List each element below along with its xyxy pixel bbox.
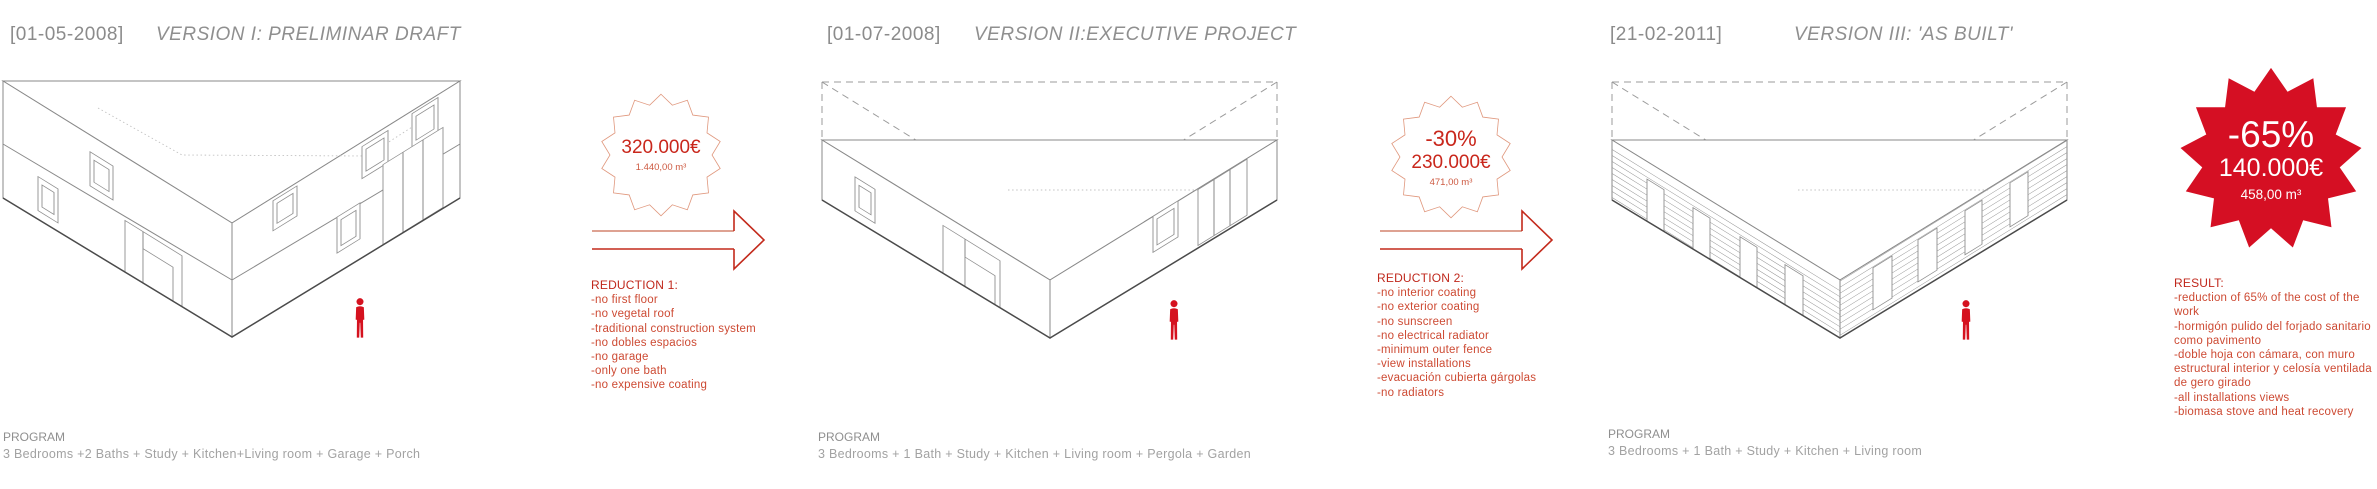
- version-2-title: VERSION II:EXECUTIVE PROJECT: [974, 24, 1296, 46]
- person-scale-icon: [1170, 300, 1179, 339]
- version-3-date: [21-02-2011]: [1610, 24, 1722, 46]
- axonometric-drawing-version-3: [1600, 75, 2120, 387]
- final-cost-badge: -65% 140.000€ 458,00 m³: [2178, 66, 2364, 252]
- result-heading: RESULT:: [2174, 276, 2377, 290]
- result-items: -reduction of 65% of the cost of the wor…: [2174, 291, 2377, 419]
- badge-area: 1.440,00 m³: [636, 162, 687, 173]
- arrow-right-icon: [1376, 208, 1556, 272]
- cost-badge-version-2: -30% 230.000€ 471,00 m³: [1389, 95, 1513, 219]
- list-item: -no exterior coating: [1377, 300, 1547, 314]
- reduction-2-items: -no interior coating-no exterior coating…: [1377, 286, 1547, 400]
- version-1-title: VERSION I: PRELIMINAR DRAFT: [156, 24, 461, 46]
- list-item: -no first floor: [591, 293, 769, 307]
- list-item: -reduction of 65% of the cost of the wor…: [2174, 291, 2377, 319]
- person-scale-icon: [1962, 300, 1971, 339]
- list-item: -doble hoja con cámara, con muro estruct…: [2174, 348, 2377, 391]
- list-item: -no vegetal roof: [591, 307, 769, 321]
- program-list: 3 Bedrooms +2 Baths + Study + Kitchen+Li…: [3, 447, 420, 461]
- axonometric-drawing-version-1: [0, 75, 520, 387]
- version-1-date: [01-05-2008]: [10, 24, 124, 46]
- badge-area: 471,00 m³: [1430, 177, 1473, 188]
- badge-percent: -30%: [1425, 126, 1476, 152]
- version-3-title: VERSION III: 'AS BUILT': [1794, 24, 2013, 46]
- badge-percent: -65%: [2228, 116, 2314, 155]
- badge-price: 140.000€: [2219, 154, 2323, 183]
- program-label: PROGRAM: [3, 430, 420, 444]
- reduction-2-heading: REDUCTION 2:: [1377, 271, 1547, 285]
- program-label: PROGRAM: [1608, 427, 1922, 441]
- list-item: -view installations: [1377, 357, 1547, 371]
- arrow-right-icon: [588, 208, 768, 272]
- reduction-1-list: REDUCTION 1: -no first floor-no vegetal …: [591, 278, 769, 393]
- list-item: -no interior coating: [1377, 286, 1547, 300]
- project-versions-infographic: [01-05-2008] VERSION I: PRELIMINAR DRAFT: [0, 0, 2377, 489]
- list-item: -no electrical radiator: [1377, 329, 1547, 343]
- reduction-2-list: REDUCTION 2: -no interior coating-no ext…: [1377, 271, 1547, 400]
- list-item: -no dobles espacios: [591, 336, 769, 350]
- badge-area: 458,00 m³: [2241, 187, 2302, 202]
- result-list: RESULT: -reduction of 65% of the cost of…: [2174, 276, 2377, 419]
- list-item: -no garage: [591, 350, 769, 364]
- list-item: -evacuación cubierta gárgolas: [1377, 371, 1547, 385]
- version-2-date: [01-07-2008]: [827, 24, 941, 46]
- list-item: -hormigón pulido del forjado sanitario c…: [2174, 320, 2377, 348]
- list-item: -no sunscreen: [1377, 315, 1547, 329]
- list-item: -minimum outer fence: [1377, 343, 1547, 357]
- person-scale-icon: [356, 298, 365, 337]
- reduction-1-items: -no first floor-no vegetal roof-traditio…: [591, 293, 769, 392]
- list-item: -biomasa stove and heat recovery: [2174, 405, 2377, 419]
- program-version-1: PROGRAM 3 Bedrooms +2 Baths + Study + Ki…: [3, 430, 420, 461]
- program-list: 3 Bedrooms + 1 Bath + Study + Kitchen + …: [818, 447, 1251, 461]
- list-item: -no radiators: [1377, 386, 1547, 400]
- list-item: -only one bath: [591, 364, 769, 378]
- program-label: PROGRAM: [818, 430, 1251, 444]
- cost-badge-version-1: 320.000€ 1.440,00 m³: [599, 93, 723, 217]
- program-version-3: PROGRAM 3 Bedrooms + 1 Bath + Study + Ki…: [1608, 427, 1922, 458]
- program-version-2: PROGRAM 3 Bedrooms + 1 Bath + Study + Ki…: [818, 430, 1251, 461]
- reduction-1-heading: REDUCTION 1:: [591, 278, 769, 292]
- axonometric-drawing-version-2: [810, 75, 1330, 387]
- badge-price: 320.000€: [621, 137, 700, 159]
- list-item: -all installations views: [2174, 391, 2377, 405]
- badge-price: 230.000€: [1411, 152, 1490, 174]
- program-list: 3 Bedrooms + 1 Bath + Study + Kitchen + …: [1608, 444, 1922, 458]
- list-item: -traditional construction system: [591, 322, 769, 336]
- list-item: -no expensive coating: [591, 378, 769, 392]
